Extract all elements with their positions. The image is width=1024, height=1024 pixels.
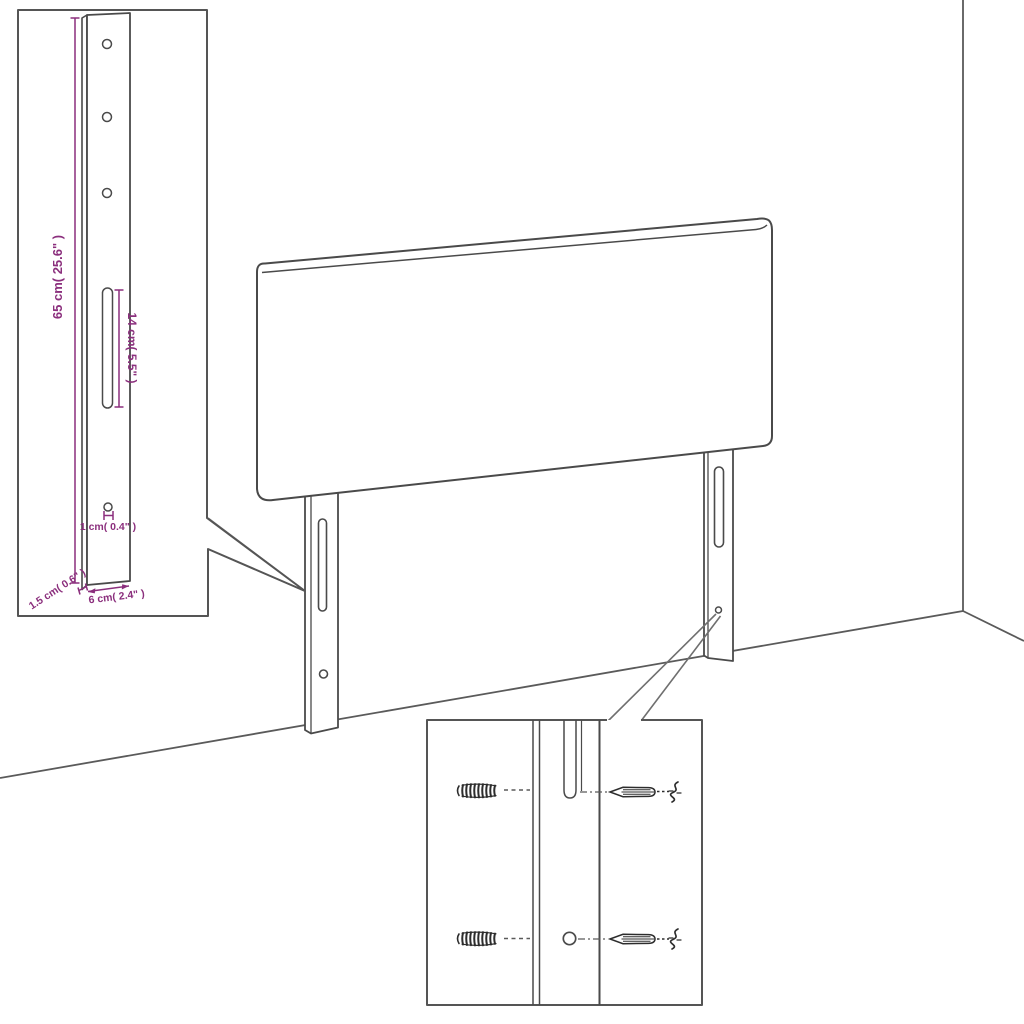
diagram-canvas: 65 cm( 25.6" ) 14 cm( 5.5" ) 1 cm( 0.4" … xyxy=(0,0,1024,1024)
bracket-slot xyxy=(103,288,113,408)
right-leg-slot xyxy=(715,467,724,547)
headboard-dimension-diagram: 65 cm( 25.6" ) 14 cm( 5.5" ) 1 cm( 0.4" … xyxy=(0,0,1024,1024)
dimension-label-hole: 1 cm( 0.4" ) xyxy=(80,521,136,533)
dimension-label-height: 65 cm( 25.6" ) xyxy=(50,235,65,319)
right-leg-hole xyxy=(716,607,722,613)
bracket-bottom-hole xyxy=(104,503,112,511)
bracket-hole-lower xyxy=(103,189,112,198)
floor-line-right xyxy=(963,611,1024,641)
headboard-right-leg xyxy=(704,441,733,661)
detail-inset-mounting xyxy=(427,720,702,1005)
dimension-label-slot: 14 cm( 5.5" ) xyxy=(125,312,139,383)
bracket-hole-middle xyxy=(103,113,112,122)
left-leg-slot xyxy=(319,519,327,611)
left-leg-hole xyxy=(320,670,328,678)
headboard-panel xyxy=(257,219,772,501)
bracket-hole-top xyxy=(103,40,112,49)
headboard-left-leg xyxy=(305,479,338,734)
